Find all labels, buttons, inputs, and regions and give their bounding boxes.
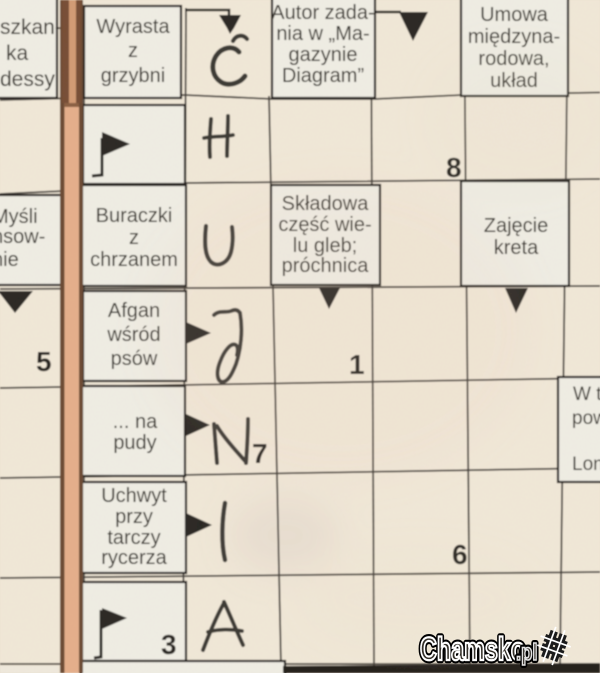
svg-text:.pl: .pl (516, 640, 537, 665)
svg-text:Chamsko: Chamsko (420, 631, 525, 666)
